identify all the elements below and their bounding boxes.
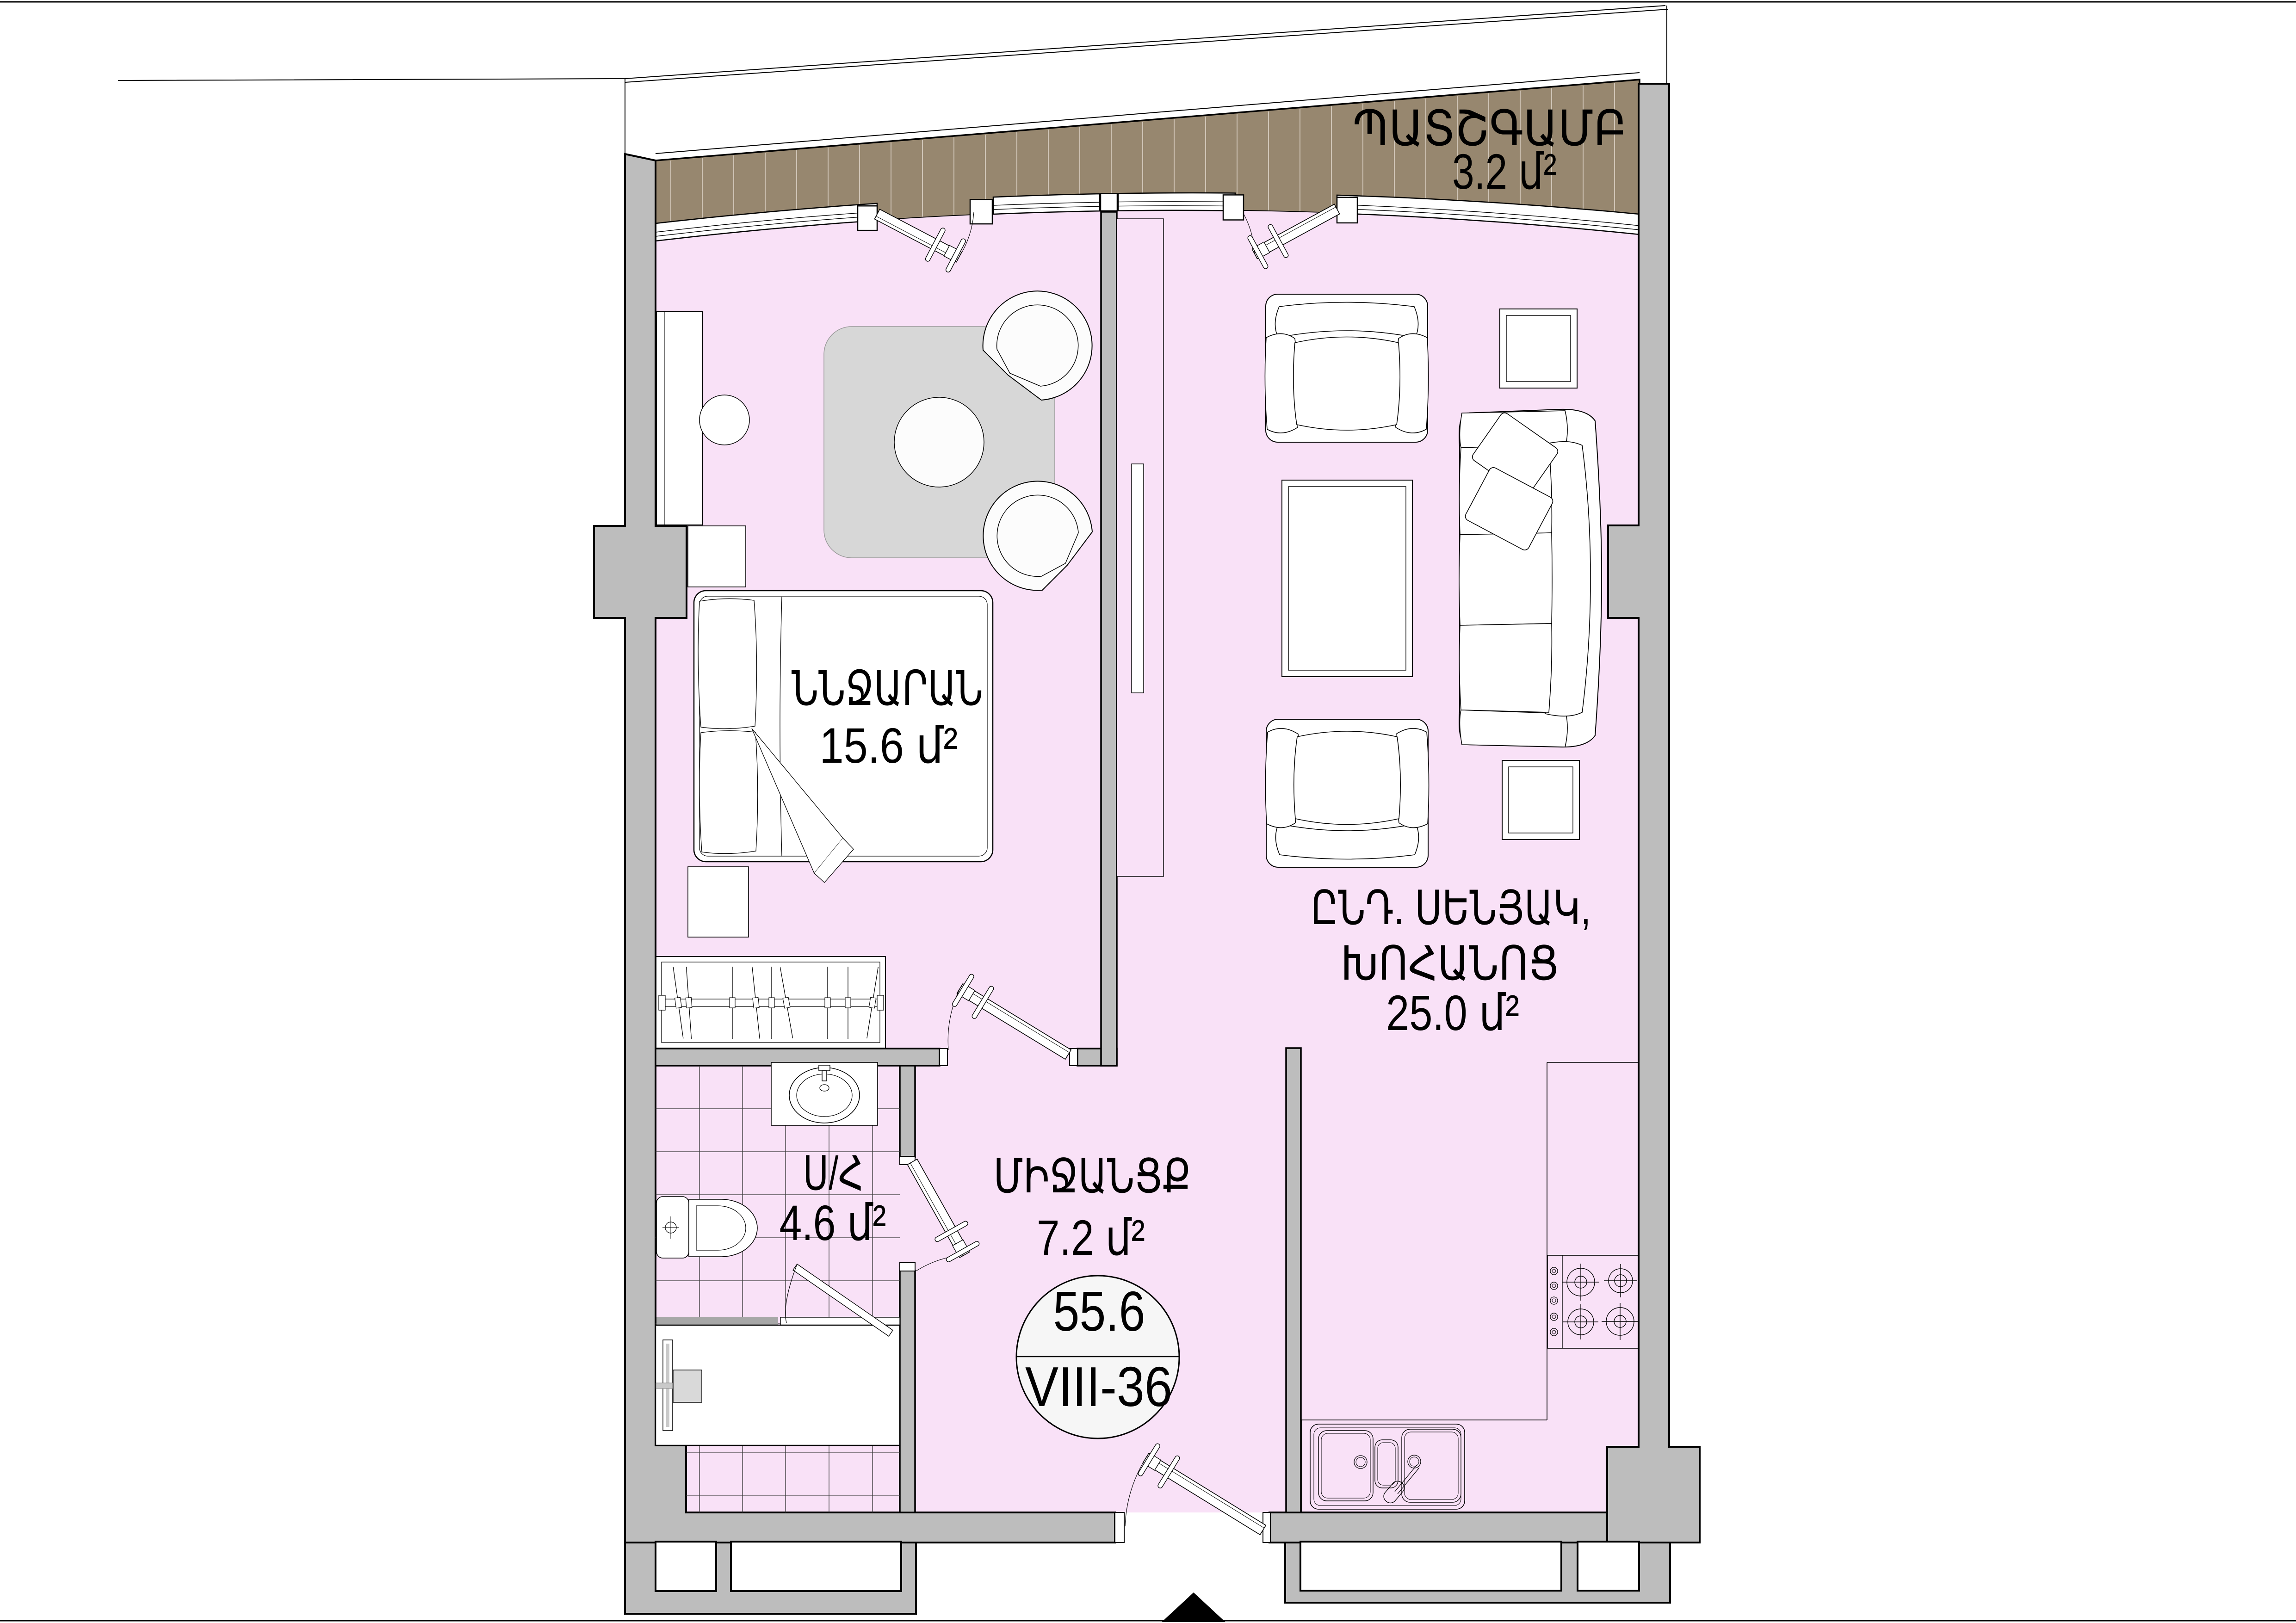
svg-text:4.6 մ²: 4.6 մ² xyxy=(780,1195,886,1251)
svg-text:ՆՆՋԱՐԱՆ: ՆՆՋԱՐԱՆ xyxy=(792,662,983,716)
svg-text:VIII-36: VIII-36 xyxy=(1025,1355,1172,1418)
svg-text:15.6 մ²: 15.6 մ² xyxy=(820,717,958,773)
svg-text:7.2 մ²: 7.2 մ² xyxy=(1037,1210,1145,1265)
svg-text:ՄԻՋԱՆՑՔ: ՄԻՋԱՆՑՔ xyxy=(994,1150,1191,1203)
svg-text:Ս/Հ: Ս/Հ xyxy=(803,1147,864,1200)
svg-text:3.2 մ²: 3.2 մ² xyxy=(1452,143,1557,199)
svg-text:25.0 մ²: 25.0 մ² xyxy=(1386,985,1519,1041)
svg-text:55.6: 55.6 xyxy=(1053,1280,1145,1343)
svg-text:ԽՈՀԱՆՈՑ: ԽՈՀԱՆՈՑ xyxy=(1341,937,1559,990)
svg-text:ԸՆԴ. ՍԵՆՅԱԿ,: ԸՆԴ. ՍԵՆՅԱԿ, xyxy=(1311,882,1591,934)
